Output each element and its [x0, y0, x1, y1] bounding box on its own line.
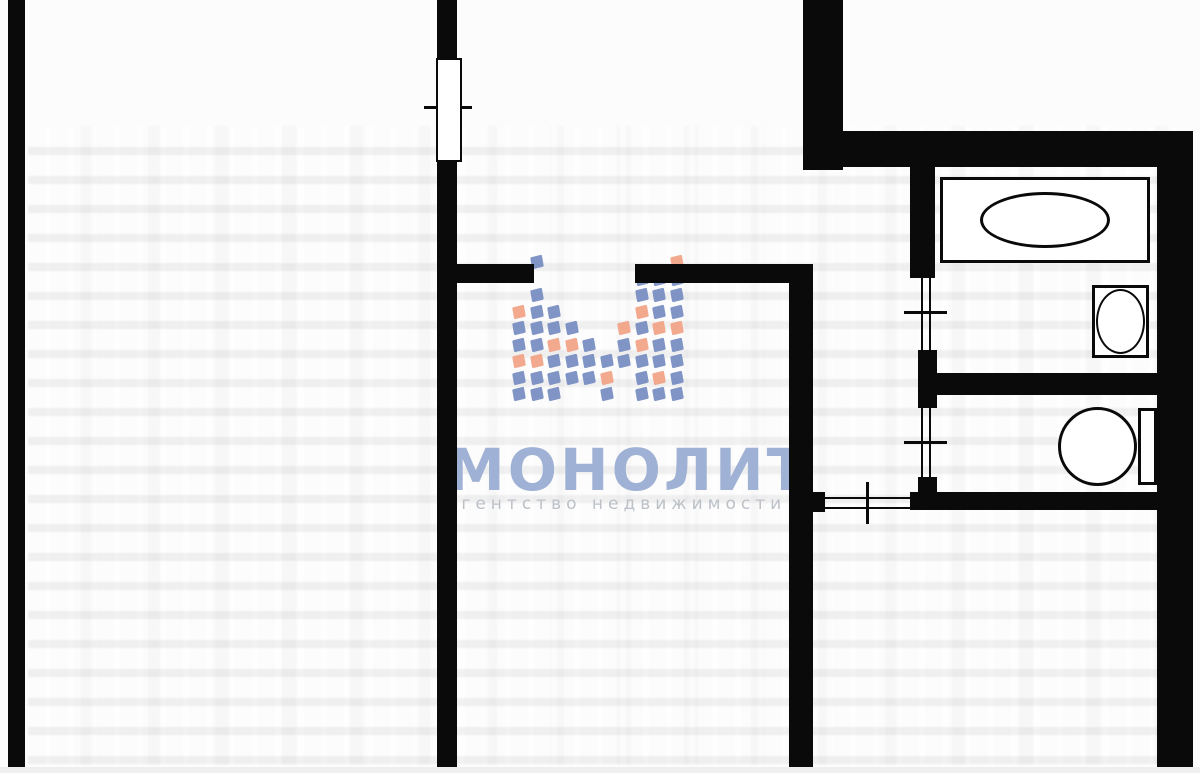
entrance-wall-horizontal-thick — [843, 131, 1193, 167]
room-divider-wall-right-seg — [635, 264, 813, 283]
toilet-bowl — [1058, 407, 1137, 486]
toilet-bottom-wall — [910, 492, 1193, 510]
bottom-edge-artifact — [0, 767, 1200, 773]
plan-walls-layer — [0, 0, 1200, 773]
hall-door-tick — [866, 482, 869, 524]
hall-door-stub — [813, 492, 825, 512]
entrance-wall-vertical-thick — [803, 0, 843, 170]
bathroom-toilet-divider-wall — [918, 373, 1160, 395]
room-divider-wall-left-seg — [455, 264, 534, 283]
bathroom-wall-upper — [910, 167, 935, 278]
outer-wall-right — [1157, 131, 1193, 768]
outer-wall-left — [8, 0, 25, 768]
corridor-wall-vertical — [789, 264, 813, 768]
bathroom-door-tick — [904, 311, 947, 314]
bathroom-door-jamb-left — [921, 278, 923, 350]
toilet-tank — [1138, 408, 1157, 485]
window-partition-upper — [437, 0, 457, 62]
sink-basin — [1096, 289, 1145, 354]
bathroom-door-jamb-right — [929, 278, 931, 350]
window-partition-main — [437, 159, 457, 768]
bathtub-basin — [980, 192, 1110, 248]
toilet-door-tick — [904, 441, 947, 444]
floor-plan: МОНОЛИТ агентство недвижимости — [0, 0, 1200, 773]
window-frame — [436, 58, 462, 162]
